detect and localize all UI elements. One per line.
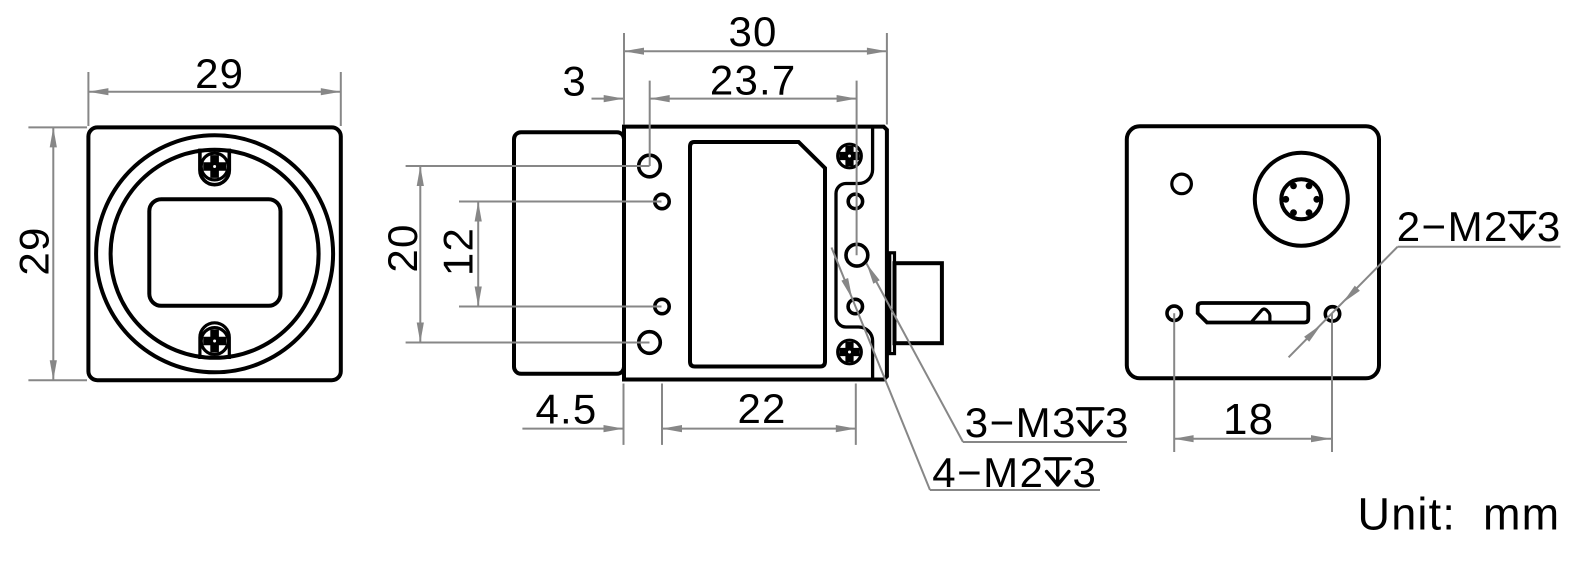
svg-text:3−M3: 3−M3 (965, 399, 1077, 446)
svg-text:3: 3 (1105, 399, 1130, 446)
svg-text:mm: mm (1483, 489, 1560, 540)
svg-text:29: 29 (195, 50, 244, 97)
svg-text:3: 3 (562, 58, 587, 105)
svg-text:29: 29 (10, 226, 57, 275)
svg-text:18: 18 (1223, 395, 1274, 444)
svg-text:Unit:: Unit: (1358, 489, 1457, 540)
svg-text:3: 3 (1537, 203, 1562, 250)
svg-text:12: 12 (435, 227, 482, 276)
svg-text:4.5: 4.5 (536, 385, 598, 432)
svg-text:20: 20 (379, 223, 426, 272)
svg-text:4−M2: 4−M2 (932, 449, 1044, 496)
svg-text:23.7: 23.7 (710, 57, 797, 104)
svg-text:3: 3 (1073, 449, 1098, 496)
svg-text:22: 22 (737, 385, 786, 432)
svg-text:2−M2: 2−M2 (1397, 203, 1509, 250)
svg-text:30: 30 (728, 8, 777, 55)
